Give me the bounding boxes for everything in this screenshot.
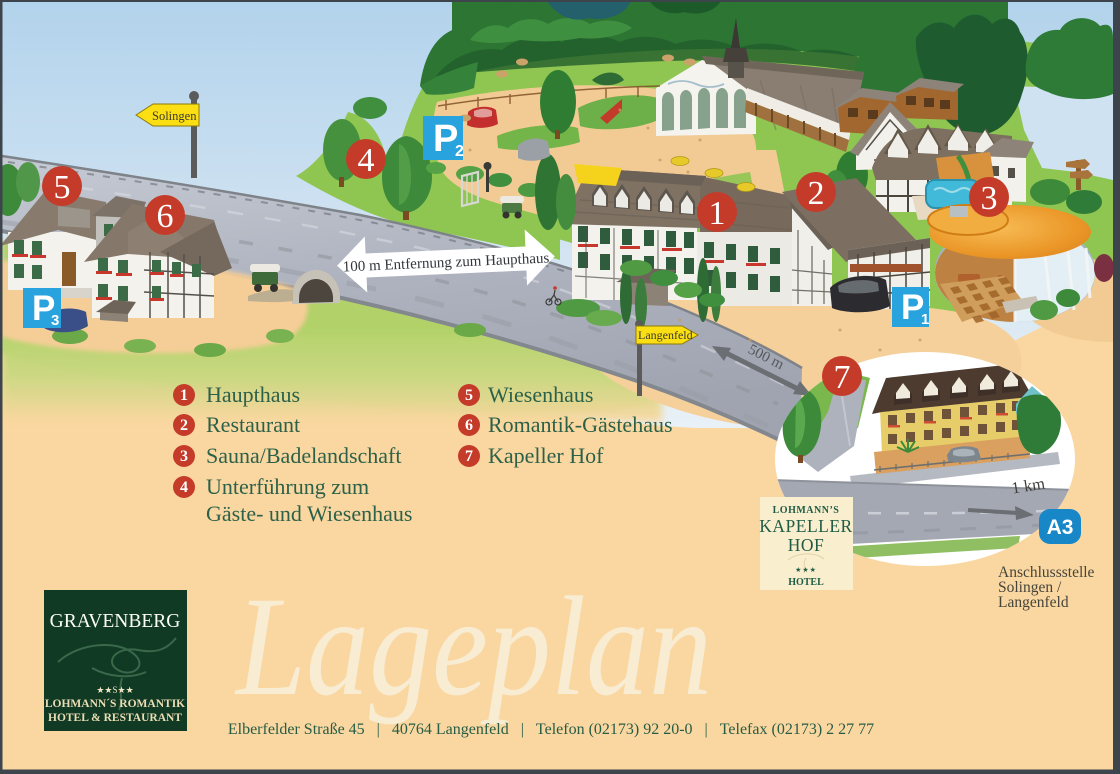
svg-text:Elberfelder Straße 45 | 40: Elberfelder Straße 45 | 40764 Langenfeld… bbox=[228, 721, 874, 738]
svg-text:6: 6 bbox=[465, 417, 473, 434]
svg-text:Langenfeld: Langenfeld bbox=[998, 594, 1069, 611]
svg-text:HOTEL: HOTEL bbox=[788, 577, 824, 588]
svg-text:★★S★★: ★★S★★ bbox=[96, 685, 133, 695]
svg-text:2: 2 bbox=[808, 175, 825, 212]
svg-text:5: 5 bbox=[54, 169, 71, 206]
svg-text:KAPELLER: KAPELLER bbox=[759, 516, 852, 536]
svg-text:Solingen: Solingen bbox=[152, 109, 197, 123]
svg-text:Kapeller Hof: Kapeller Hof bbox=[488, 443, 604, 468]
svg-text:Haupthaus: Haupthaus bbox=[206, 382, 300, 407]
svg-text:3: 3 bbox=[981, 180, 998, 217]
svg-text:LOHMANN’S: LOHMANN’S bbox=[773, 505, 840, 516]
svg-text:6: 6 bbox=[157, 198, 174, 235]
svg-text:5: 5 bbox=[465, 387, 473, 404]
svg-text:2: 2 bbox=[455, 143, 464, 160]
svg-text:Lageplan: Lageplan bbox=[234, 568, 712, 726]
svg-text:Wiesenhaus: Wiesenhaus bbox=[488, 382, 593, 407]
svg-text:Romantik-Gästehaus: Romantik-Gästehaus bbox=[488, 412, 673, 437]
svg-text:A3: A3 bbox=[1047, 516, 1074, 539]
svg-text:1: 1 bbox=[921, 311, 929, 328]
svg-text:Langenfeld: Langenfeld bbox=[638, 328, 693, 342]
svg-text:★★★: ★★★ bbox=[795, 566, 817, 574]
svg-text:Sauna/Badelandschaft: Sauna/Badelandschaft bbox=[206, 443, 402, 468]
svg-text:1: 1 bbox=[709, 195, 726, 232]
svg-text:Gäste- und Wiesenhaus: Gäste- und Wiesenhaus bbox=[206, 501, 412, 526]
svg-text:Restaurant: Restaurant bbox=[206, 412, 300, 437]
svg-text:GRAVENBERG: GRAVENBERG bbox=[50, 611, 181, 632]
svg-text:4: 4 bbox=[358, 142, 375, 179]
svg-text:LOHMANN´S ROMANTIK: LOHMANN´S ROMANTIK bbox=[45, 698, 185, 710]
svg-text:HOTEL & RESTAURANT: HOTEL & RESTAURANT bbox=[48, 712, 182, 724]
svg-text:7: 7 bbox=[834, 359, 851, 396]
svg-text:Unterführung zum: Unterführung zum bbox=[206, 474, 369, 499]
svg-text:3: 3 bbox=[51, 312, 59, 329]
svg-text:1: 1 bbox=[180, 387, 188, 404]
svg-text:3: 3 bbox=[180, 448, 188, 465]
svg-text:4: 4 bbox=[180, 479, 188, 496]
svg-text:7: 7 bbox=[465, 448, 473, 465]
svg-text:HOF: HOF bbox=[788, 535, 825, 555]
svg-text:2: 2 bbox=[180, 417, 188, 434]
